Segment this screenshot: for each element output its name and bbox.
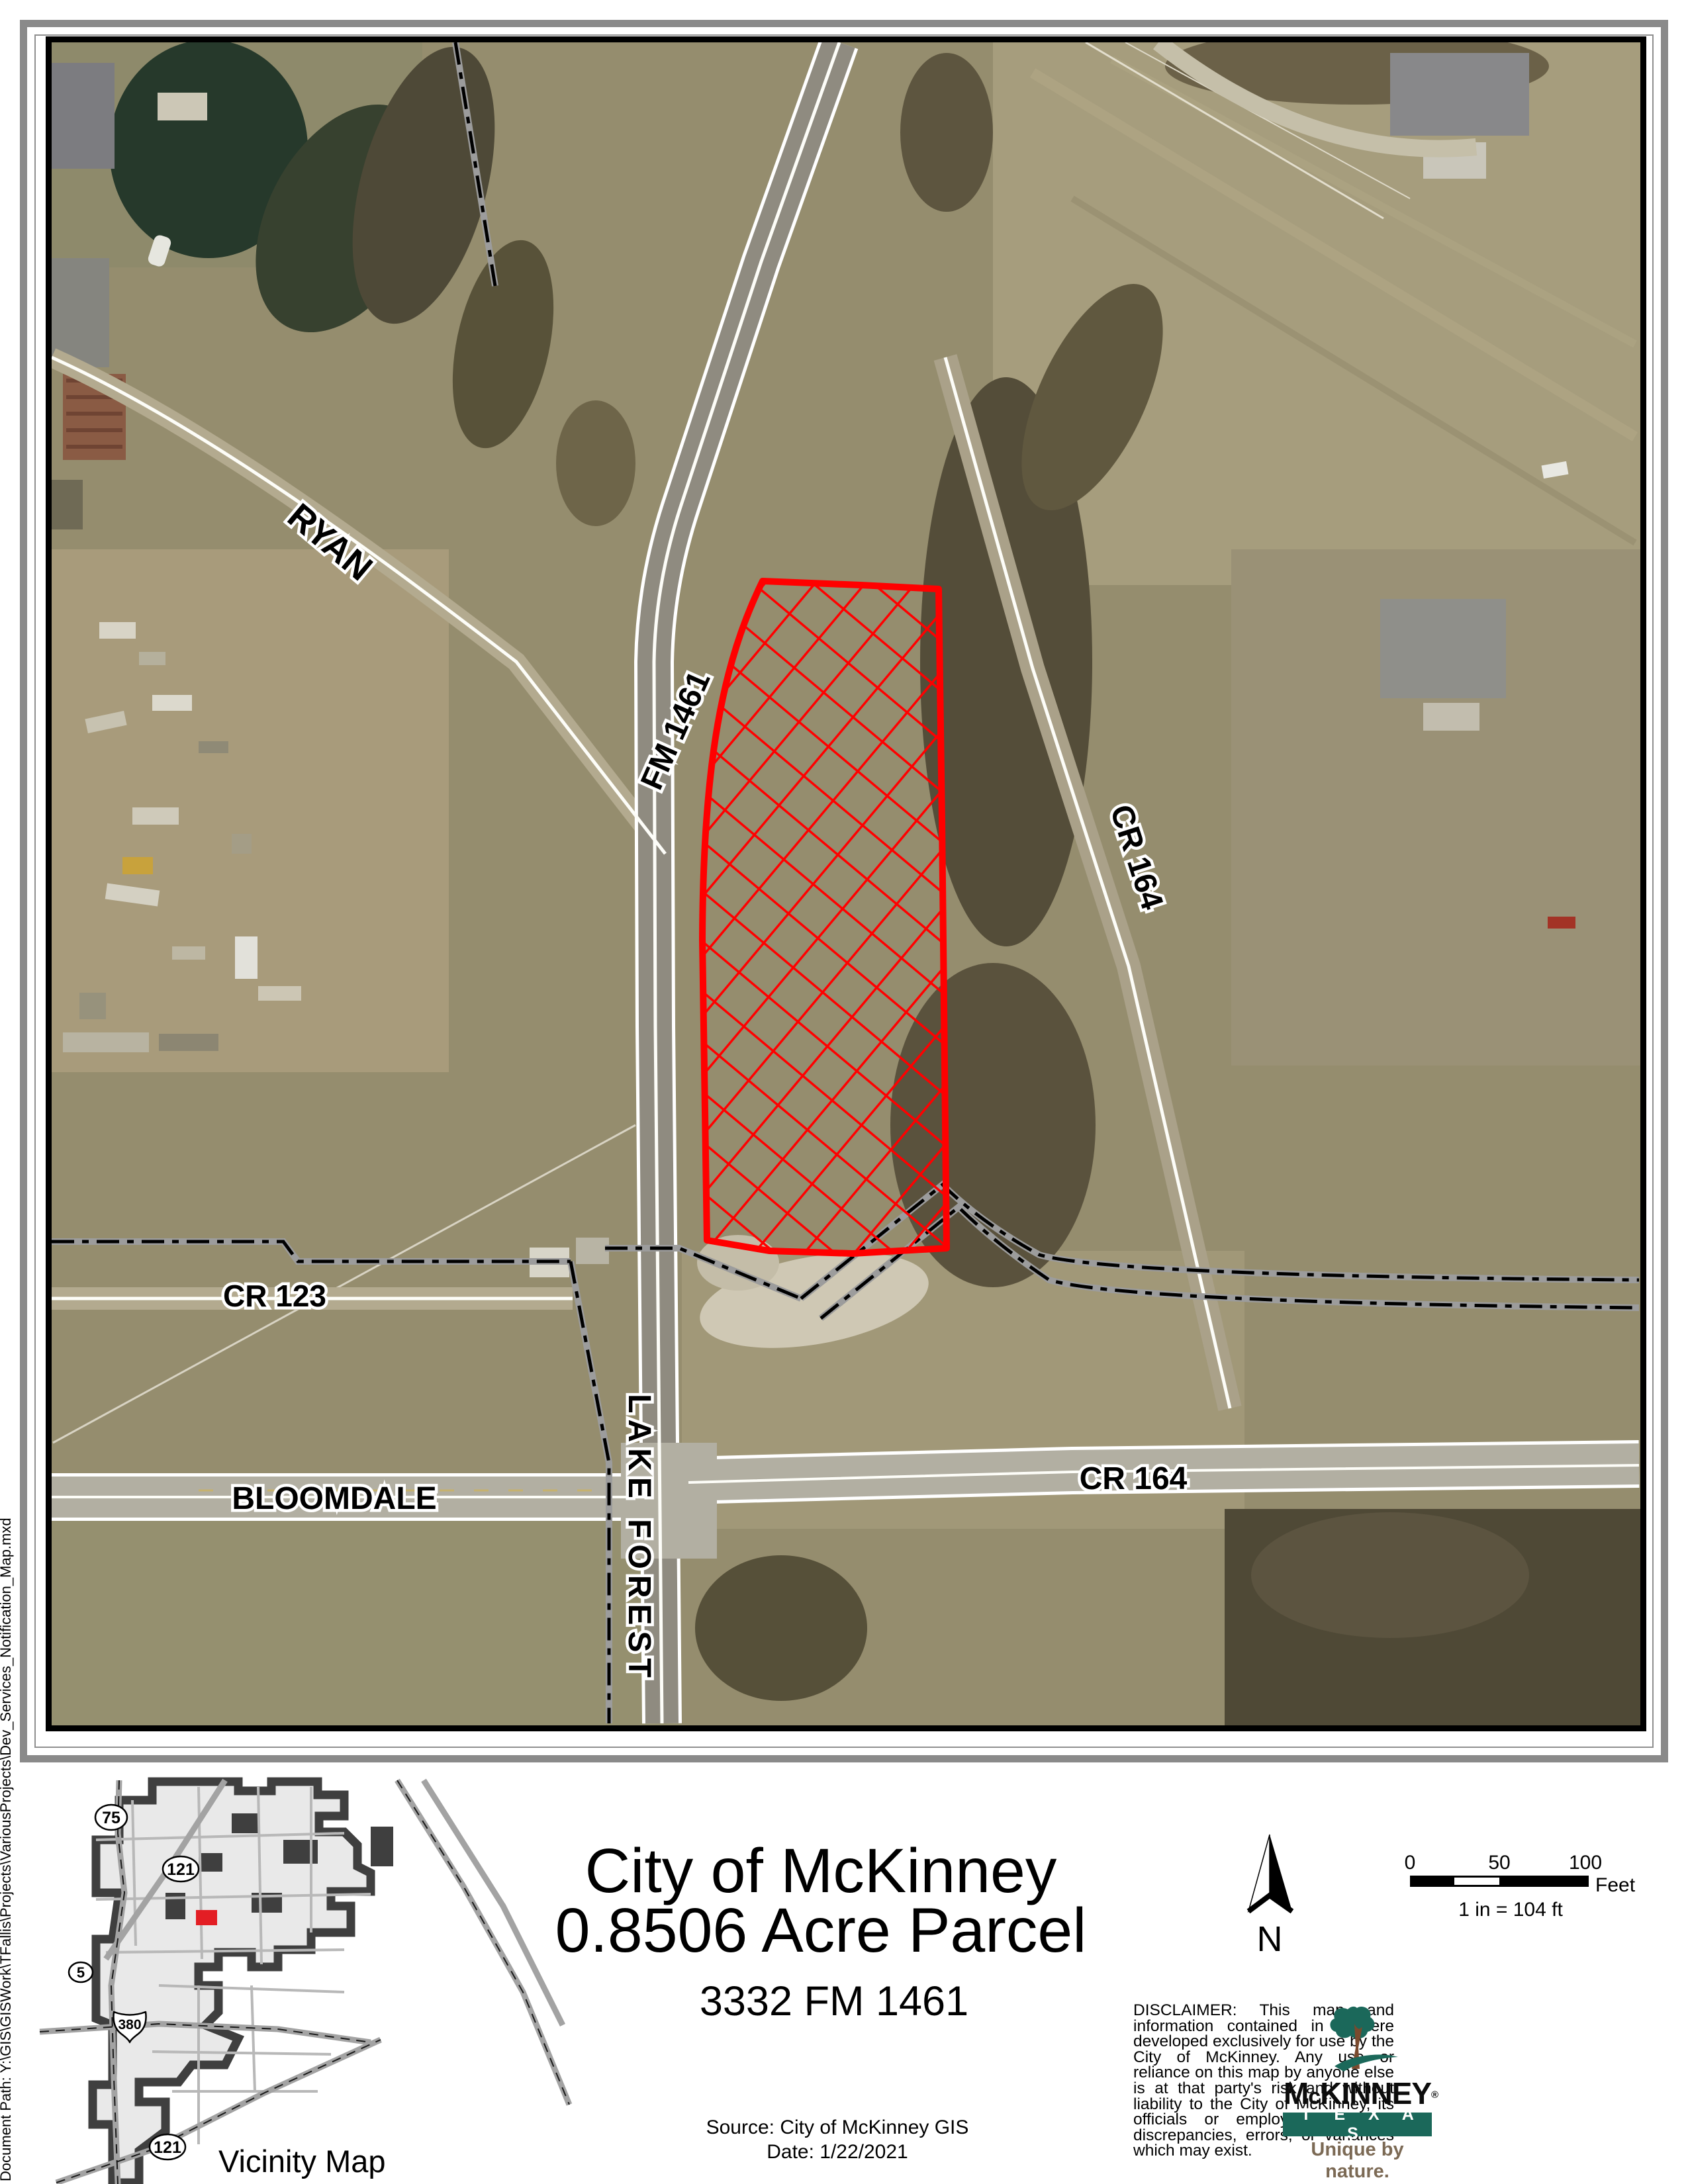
scale-bar: 0 50 100 Feet 1 in = 104 ft [1390, 1846, 1655, 1926]
document-path-text: Document Path: Y:\GIS\GISWork\TFallis\Pr… [0, 1518, 15, 2181]
vicinity-map-title: Vicinity Map [218, 2143, 483, 2179]
tree-crown [1330, 2007, 1374, 2038]
scale-tick-50: 50 [1488, 1852, 1510, 1874]
shield-380: 380 [118, 2017, 141, 2032]
mckinney-logo: McKINNEY® T E X A S Unique by nature. [1283, 2004, 1432, 2183]
road-label-cr123: CR 123 [223, 1279, 326, 1313]
scale-bar-white-segment [1454, 1878, 1499, 1885]
scale-tick-0: 0 [1405, 1852, 1416, 1874]
source-line: Source: City of McKinney GIS [662, 2115, 1013, 2140]
north-arrow-n: N [1257, 1919, 1283, 1959]
road-label-cr164-bottom: CR 164 [1080, 1461, 1188, 1496]
logo-tree-icon [1283, 2004, 1432, 2075]
shield-5: 5 [77, 1964, 85, 1981]
scale-tick-100: 100 [1569, 1852, 1602, 1874]
parcel-address: 3332 FM 1461 [569, 1978, 1099, 2025]
logo-tagline: Unique by nature. [1283, 2139, 1432, 2183]
north-arrow: N [1228, 1828, 1314, 1960]
page: { "doc_path": "Document Path: Y:\\GIS\\G… [0, 0, 1688, 2184]
logo-wordmark: McKINNEY® [1283, 2079, 1432, 2111]
site-marker [196, 1910, 217, 1925]
tree-swoosh [1335, 2054, 1398, 2071]
logo-texas-bar: T E X A S [1283, 2113, 1432, 2136]
road-label-lake-forest: LAKE FOREST [622, 1394, 657, 1684]
date-line: Date: 1/22/2021 [662, 2140, 1013, 2164]
main-map-frame: RYAN FM 1461 CR 164 CR 123 BLOOMDALE LAK… [46, 36, 1646, 1731]
aerial-map: RYAN FM 1461 CR 164 CR 123 BLOOMDALE LAK… [52, 42, 1640, 1725]
road-label-bloomdale: BLOOMDALE [232, 1481, 436, 1516]
source-block: Source: City of McKinney GIS Date: 1/22/… [662, 2115, 1013, 2164]
parcel-boundary [702, 581, 947, 1253]
scale-unit: Feet [1595, 1874, 1636, 1896]
map-title: City of McKinney 0.8506 Acre Parcel [543, 1841, 1099, 1960]
vicinity-map: 75 121 5 380 121 [36, 1768, 606, 2184]
shield-121-south: 121 [154, 2138, 181, 2157]
shield-121: 121 [167, 1860, 195, 1879]
shield-75: 75 [102, 1809, 120, 1827]
map-title-line2: 0.8506 Acre Parcel [543, 1901, 1099, 1960]
scale-ratio: 1 in = 104 ft [1458, 1899, 1563, 1921]
map-title-line1: City of McKinney [543, 1841, 1099, 1901]
